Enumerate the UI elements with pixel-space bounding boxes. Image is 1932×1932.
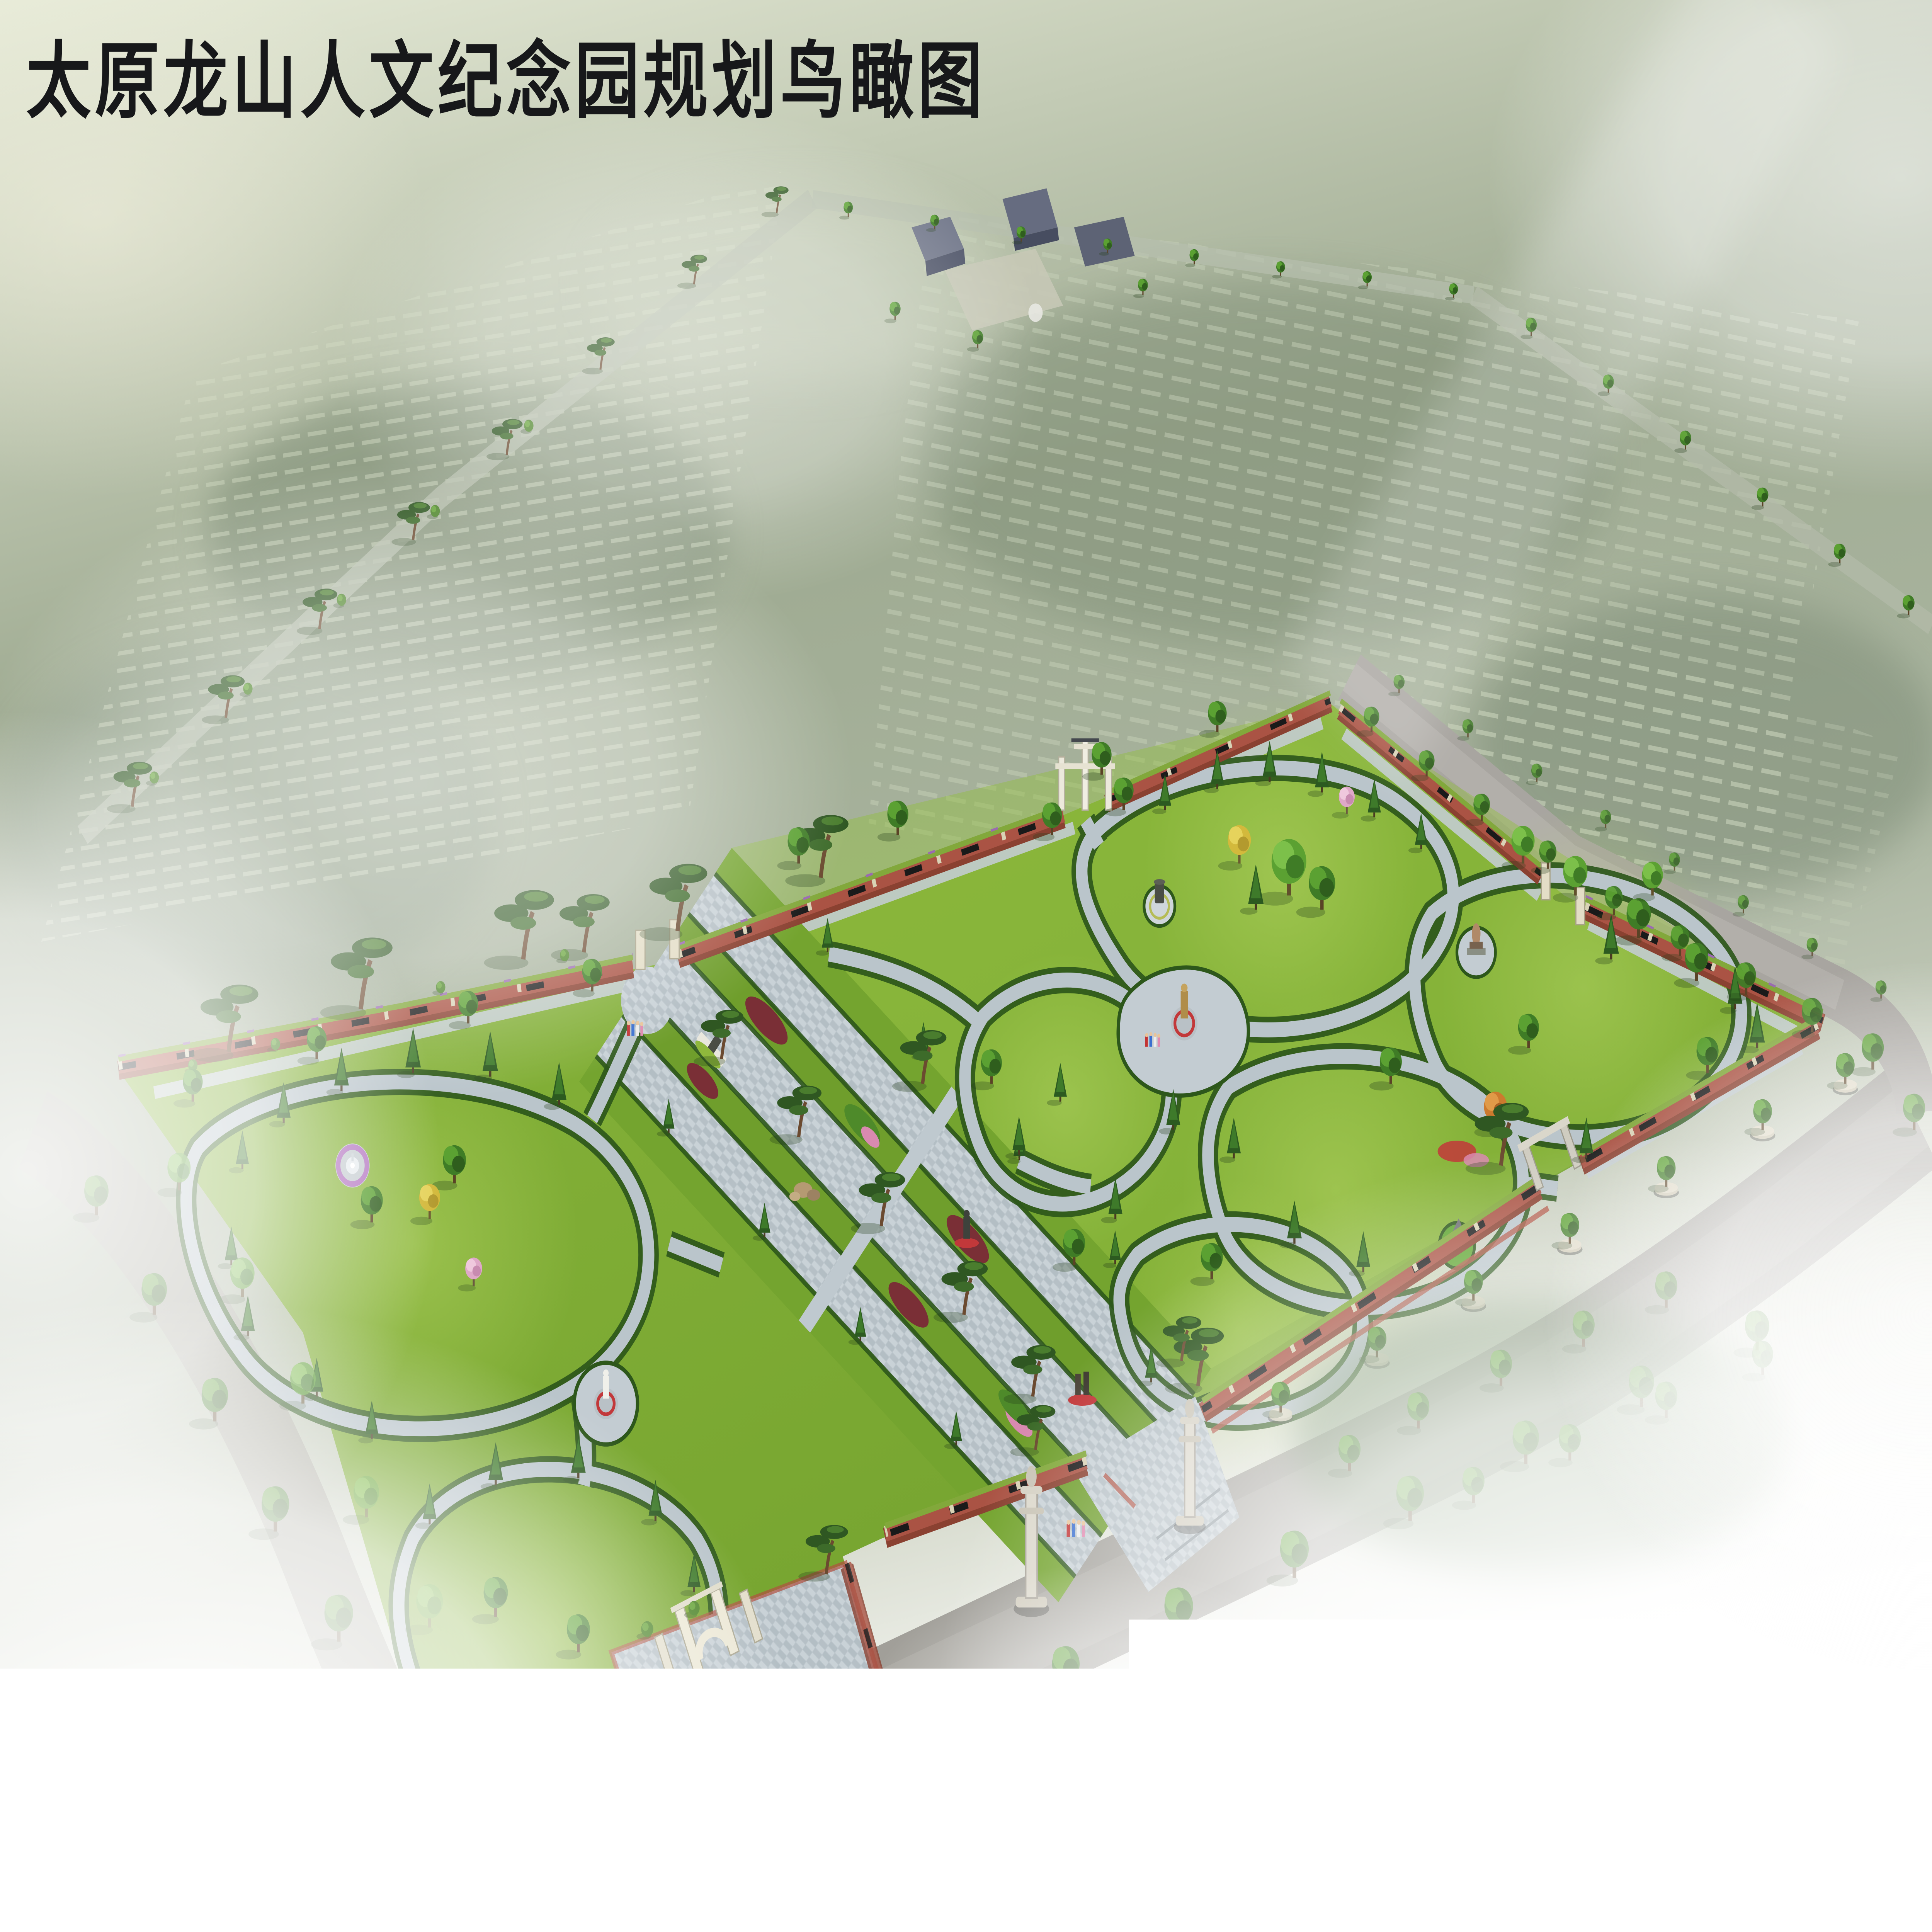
page-title: 太原龙山人文纪念园规划鸟瞰图 xyxy=(26,33,986,130)
aerial-rendering-canvas: 太原龙山人文纪念园规划鸟瞰图 xyxy=(0,0,1932,1932)
bronze-statue-plaza xyxy=(1118,968,1248,1095)
